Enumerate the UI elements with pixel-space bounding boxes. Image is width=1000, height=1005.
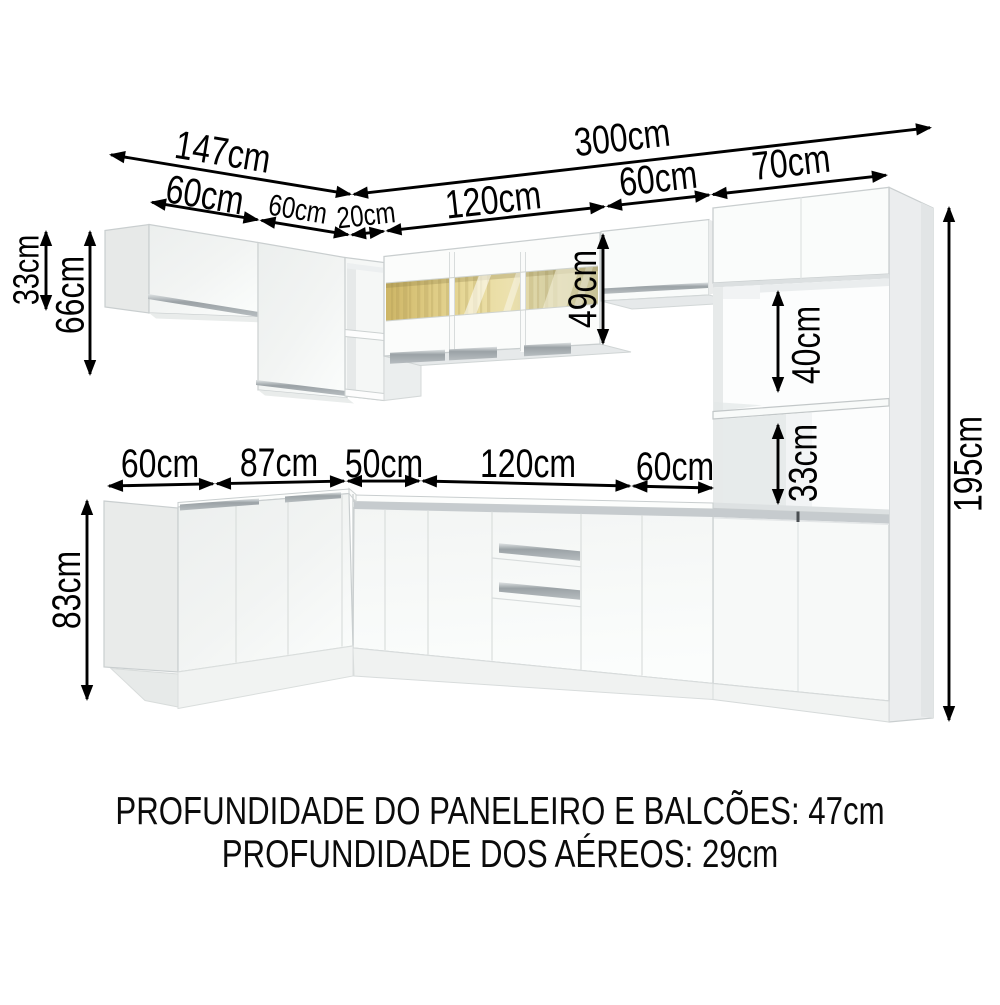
svg-text:40cm: 40cm <box>783 306 828 384</box>
svg-text:60cm: 60cm <box>121 440 199 485</box>
svg-text:20cm: 20cm <box>335 195 397 236</box>
svg-text:60cm: 60cm <box>617 151 700 205</box>
svg-text:83cm: 83cm <box>43 551 88 629</box>
svg-text:87cm: 87cm <box>240 439 318 484</box>
svg-text:33cm: 33cm <box>780 424 825 502</box>
svg-text:60cm: 60cm <box>636 443 714 488</box>
svg-text:66cm: 66cm <box>47 256 92 334</box>
svg-text:50cm: 50cm <box>345 440 423 485</box>
svg-text:120cm: 120cm <box>480 440 576 485</box>
svg-text:70cm: 70cm <box>750 135 833 189</box>
svg-text:33cm: 33cm <box>5 235 46 305</box>
svg-text:49cm: 49cm <box>559 250 604 328</box>
svg-text:195cm: 195cm <box>945 416 990 512</box>
